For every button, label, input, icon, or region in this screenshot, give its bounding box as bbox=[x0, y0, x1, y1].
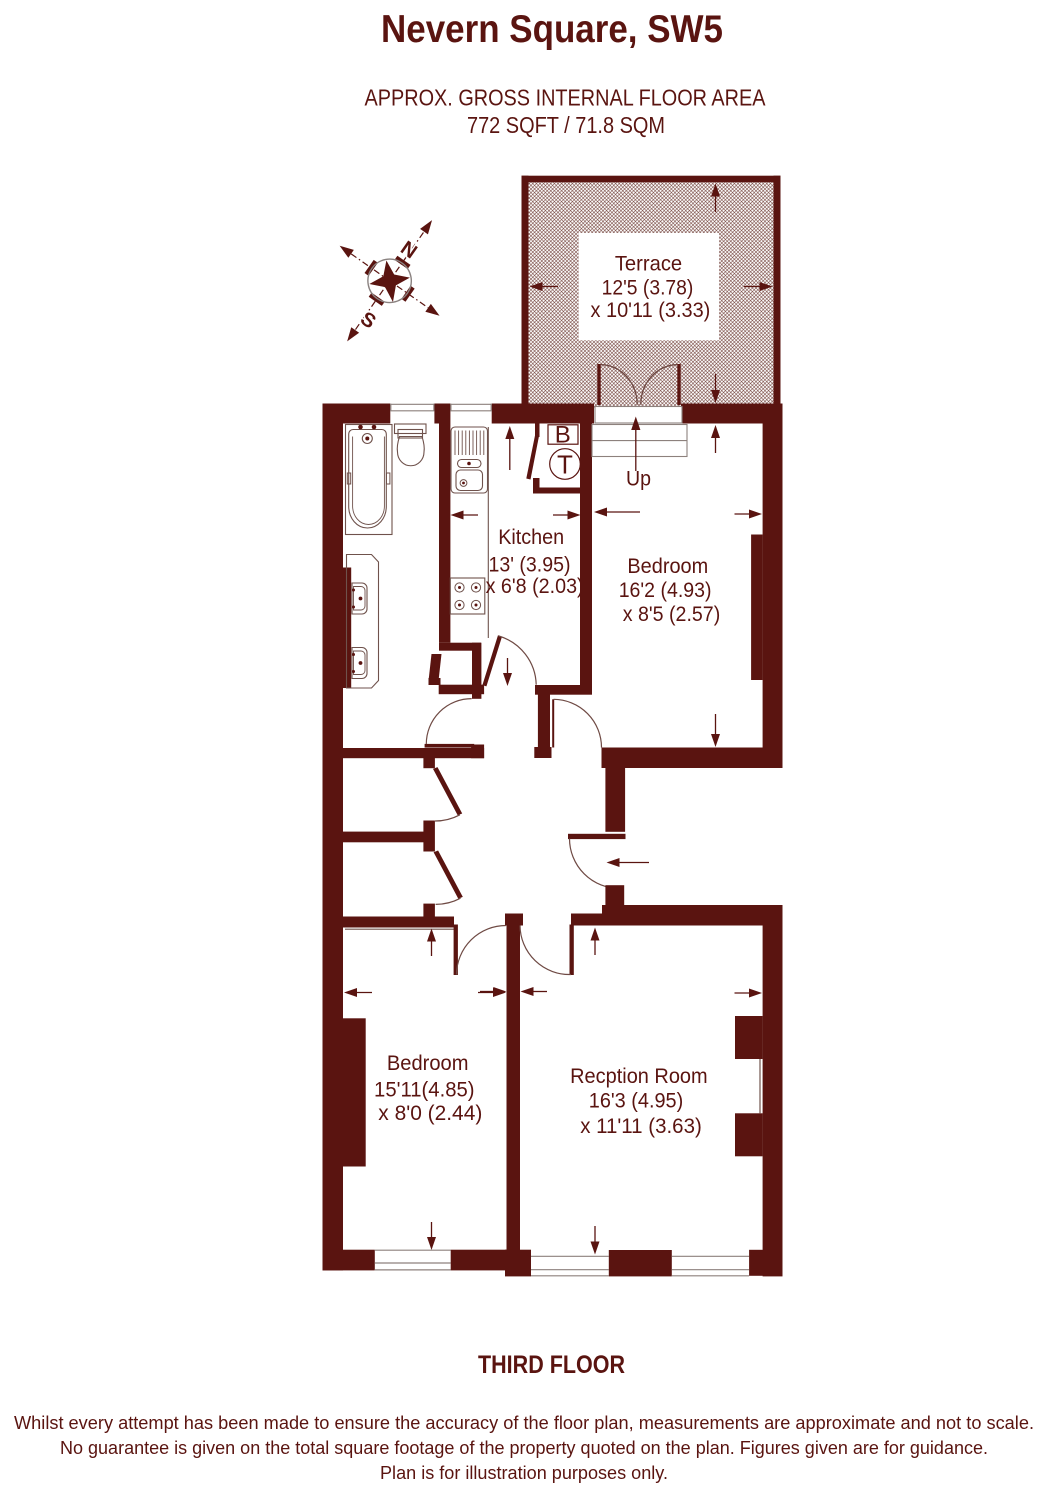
svg-text:x 11'11 (3.63): x 11'11 (3.63) bbox=[580, 1114, 702, 1138]
svg-text:15'11(4.85): 15'11(4.85) bbox=[374, 1078, 475, 1102]
svg-text:x 10'11 (3.33): x 10'11 (3.33) bbox=[591, 298, 711, 322]
svg-text:Bedroom: Bedroom bbox=[387, 1051, 469, 1075]
svg-text:No guarantee is given on the t: No guarantee is given on the total squar… bbox=[60, 1437, 988, 1458]
svg-text:x 8'5 (2.57): x 8'5 (2.57) bbox=[623, 602, 721, 626]
svg-text:APPROX. GROSS INTERNAL FLOOR A: APPROX. GROSS INTERNAL FLOOR AREA bbox=[365, 85, 767, 111]
svg-text:12'5 (3.78): 12'5 (3.78) bbox=[602, 276, 694, 300]
svg-text:x 8'0 (2.44): x 8'0 (2.44) bbox=[378, 1101, 482, 1125]
svg-text:13' (3.95): 13' (3.95) bbox=[489, 553, 571, 577]
svg-text:Kitchen: Kitchen bbox=[498, 525, 564, 549]
svg-text:Terrace: Terrace bbox=[615, 251, 682, 275]
svg-text:16'3 (4.95): 16'3 (4.95) bbox=[589, 1089, 684, 1113]
svg-text:Plan is for illustration purpo: Plan is for illustration purposes only. bbox=[380, 1462, 668, 1483]
svg-text:T: T bbox=[557, 450, 573, 480]
svg-text:THIRD FLOOR: THIRD FLOOR bbox=[478, 1351, 625, 1379]
svg-text:x 6'8 (2.03): x 6'8 (2.03) bbox=[486, 574, 584, 598]
svg-text:Recption Room: Recption Room bbox=[570, 1064, 708, 1088]
svg-text:Whilst every attempt has been: Whilst every attempt has been made to en… bbox=[14, 1412, 1034, 1433]
svg-text:Bedroom: Bedroom bbox=[627, 554, 708, 578]
svg-text:772 SQFT / 71.8 SQM: 772 SQFT / 71.8 SQM bbox=[467, 112, 665, 138]
svg-text:Nevern Square, SW5: Nevern Square, SW5 bbox=[381, 8, 723, 51]
svg-text:Up: Up bbox=[626, 467, 651, 491]
svg-text:16'2 (4.93): 16'2 (4.93) bbox=[619, 578, 712, 602]
svg-text:B: B bbox=[555, 422, 571, 449]
